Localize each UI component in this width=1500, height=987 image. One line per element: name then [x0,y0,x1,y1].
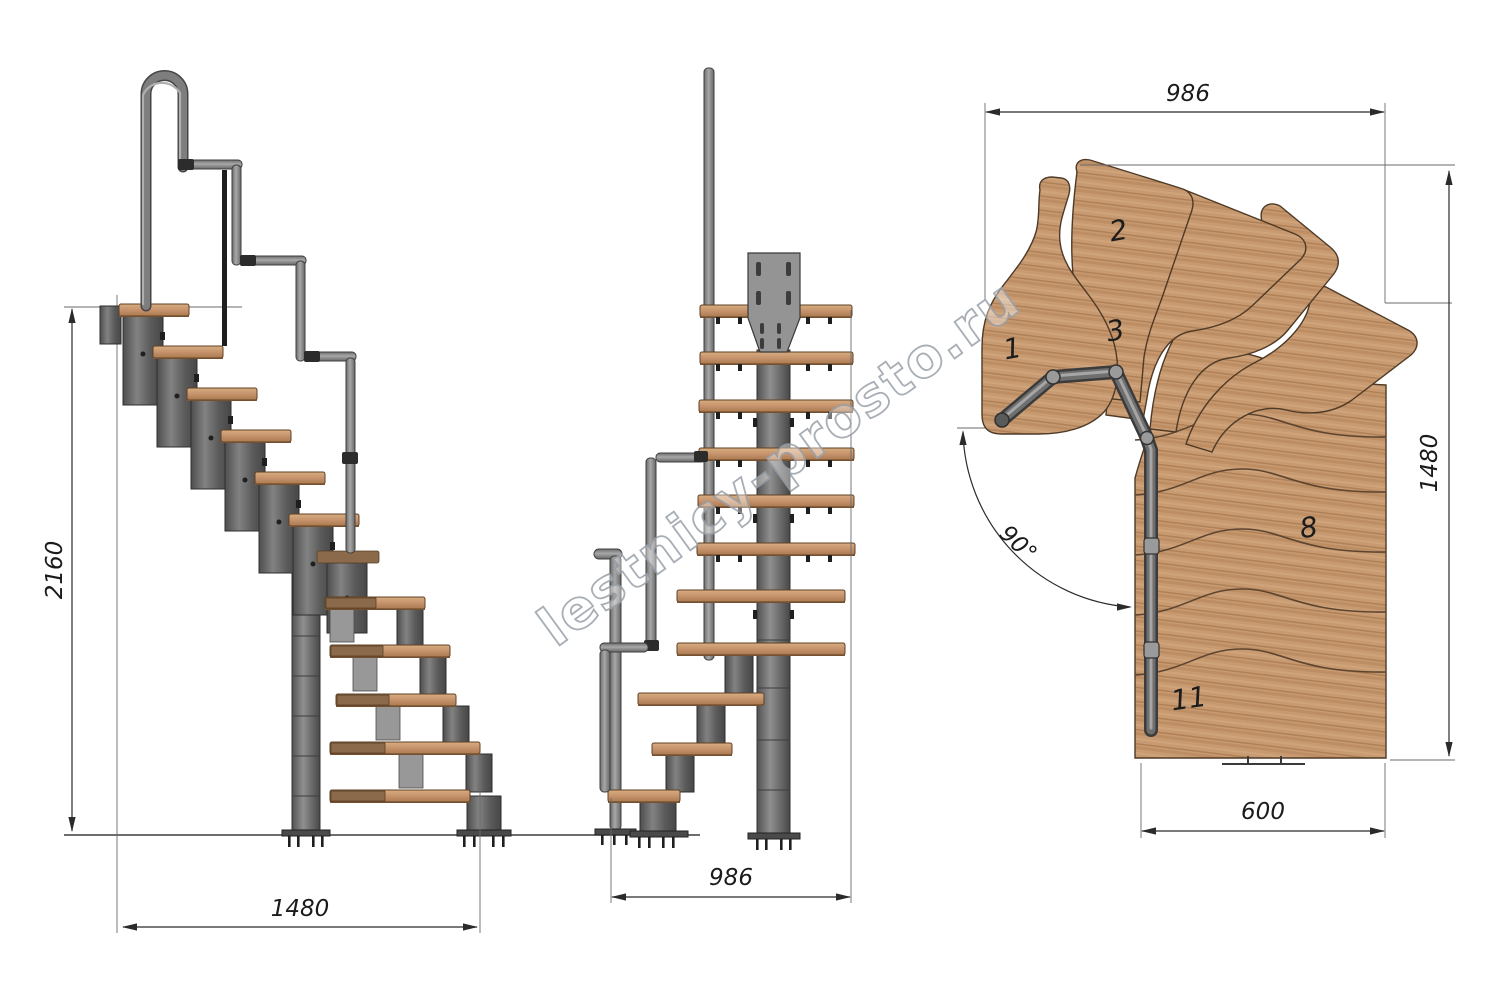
dimension-label-front-width: 986 [709,865,753,891]
drawing-canvas: 2160 [0,0,1500,987]
step-label-11: 11 [1169,680,1209,718]
side-elevation-view: 2160 [42,76,700,934]
plan-view: 1 2 3 8 11 [957,81,1455,838]
dimension-label-turn-angle: 90° [994,520,1042,567]
dimension-label-side-run: 1480 [271,896,330,922]
dimension-turn-angle: 90° [957,428,1132,611]
staircase-technical-drawing: 2160 [0,0,1500,987]
dimension-label-plan-lower-width: 600 [1241,799,1285,825]
front-mounting-plate [748,253,800,352]
front-lower-flight [608,643,845,850]
dimension-label-side-height: 2160 [42,541,68,600]
side-lower-flight [325,597,511,847]
dimension-plan-lower-width: 600 [1141,763,1385,838]
dimension-label-plan-depth: 1480 [1417,434,1443,493]
dimension-label-plan-width: 986 [1166,81,1210,107]
